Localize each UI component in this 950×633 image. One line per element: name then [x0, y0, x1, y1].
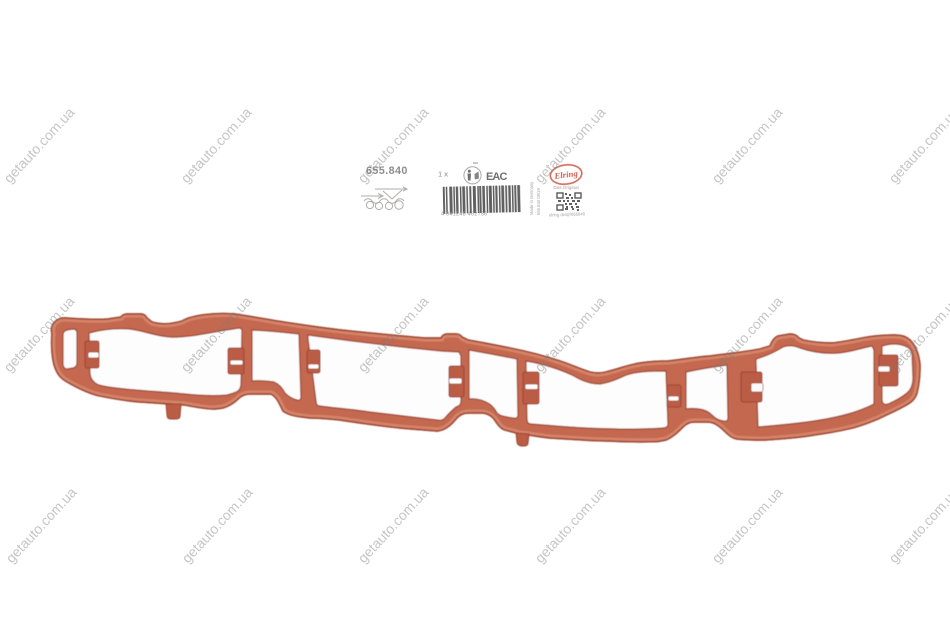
- svg-text:EAC: EAC: [486, 171, 507, 183]
- svg-text:Das Original: Das Original: [553, 185, 578, 190]
- svg-text:Made in Germany: Made in Germany: [529, 181, 534, 215]
- svg-text:1 x: 1 x: [438, 170, 448, 179]
- svg-text:655.840 08/19: 655.840 08/19: [536, 188, 541, 215]
- svg-text:4 041248 462756: 4 041248 462756: [441, 212, 487, 218]
